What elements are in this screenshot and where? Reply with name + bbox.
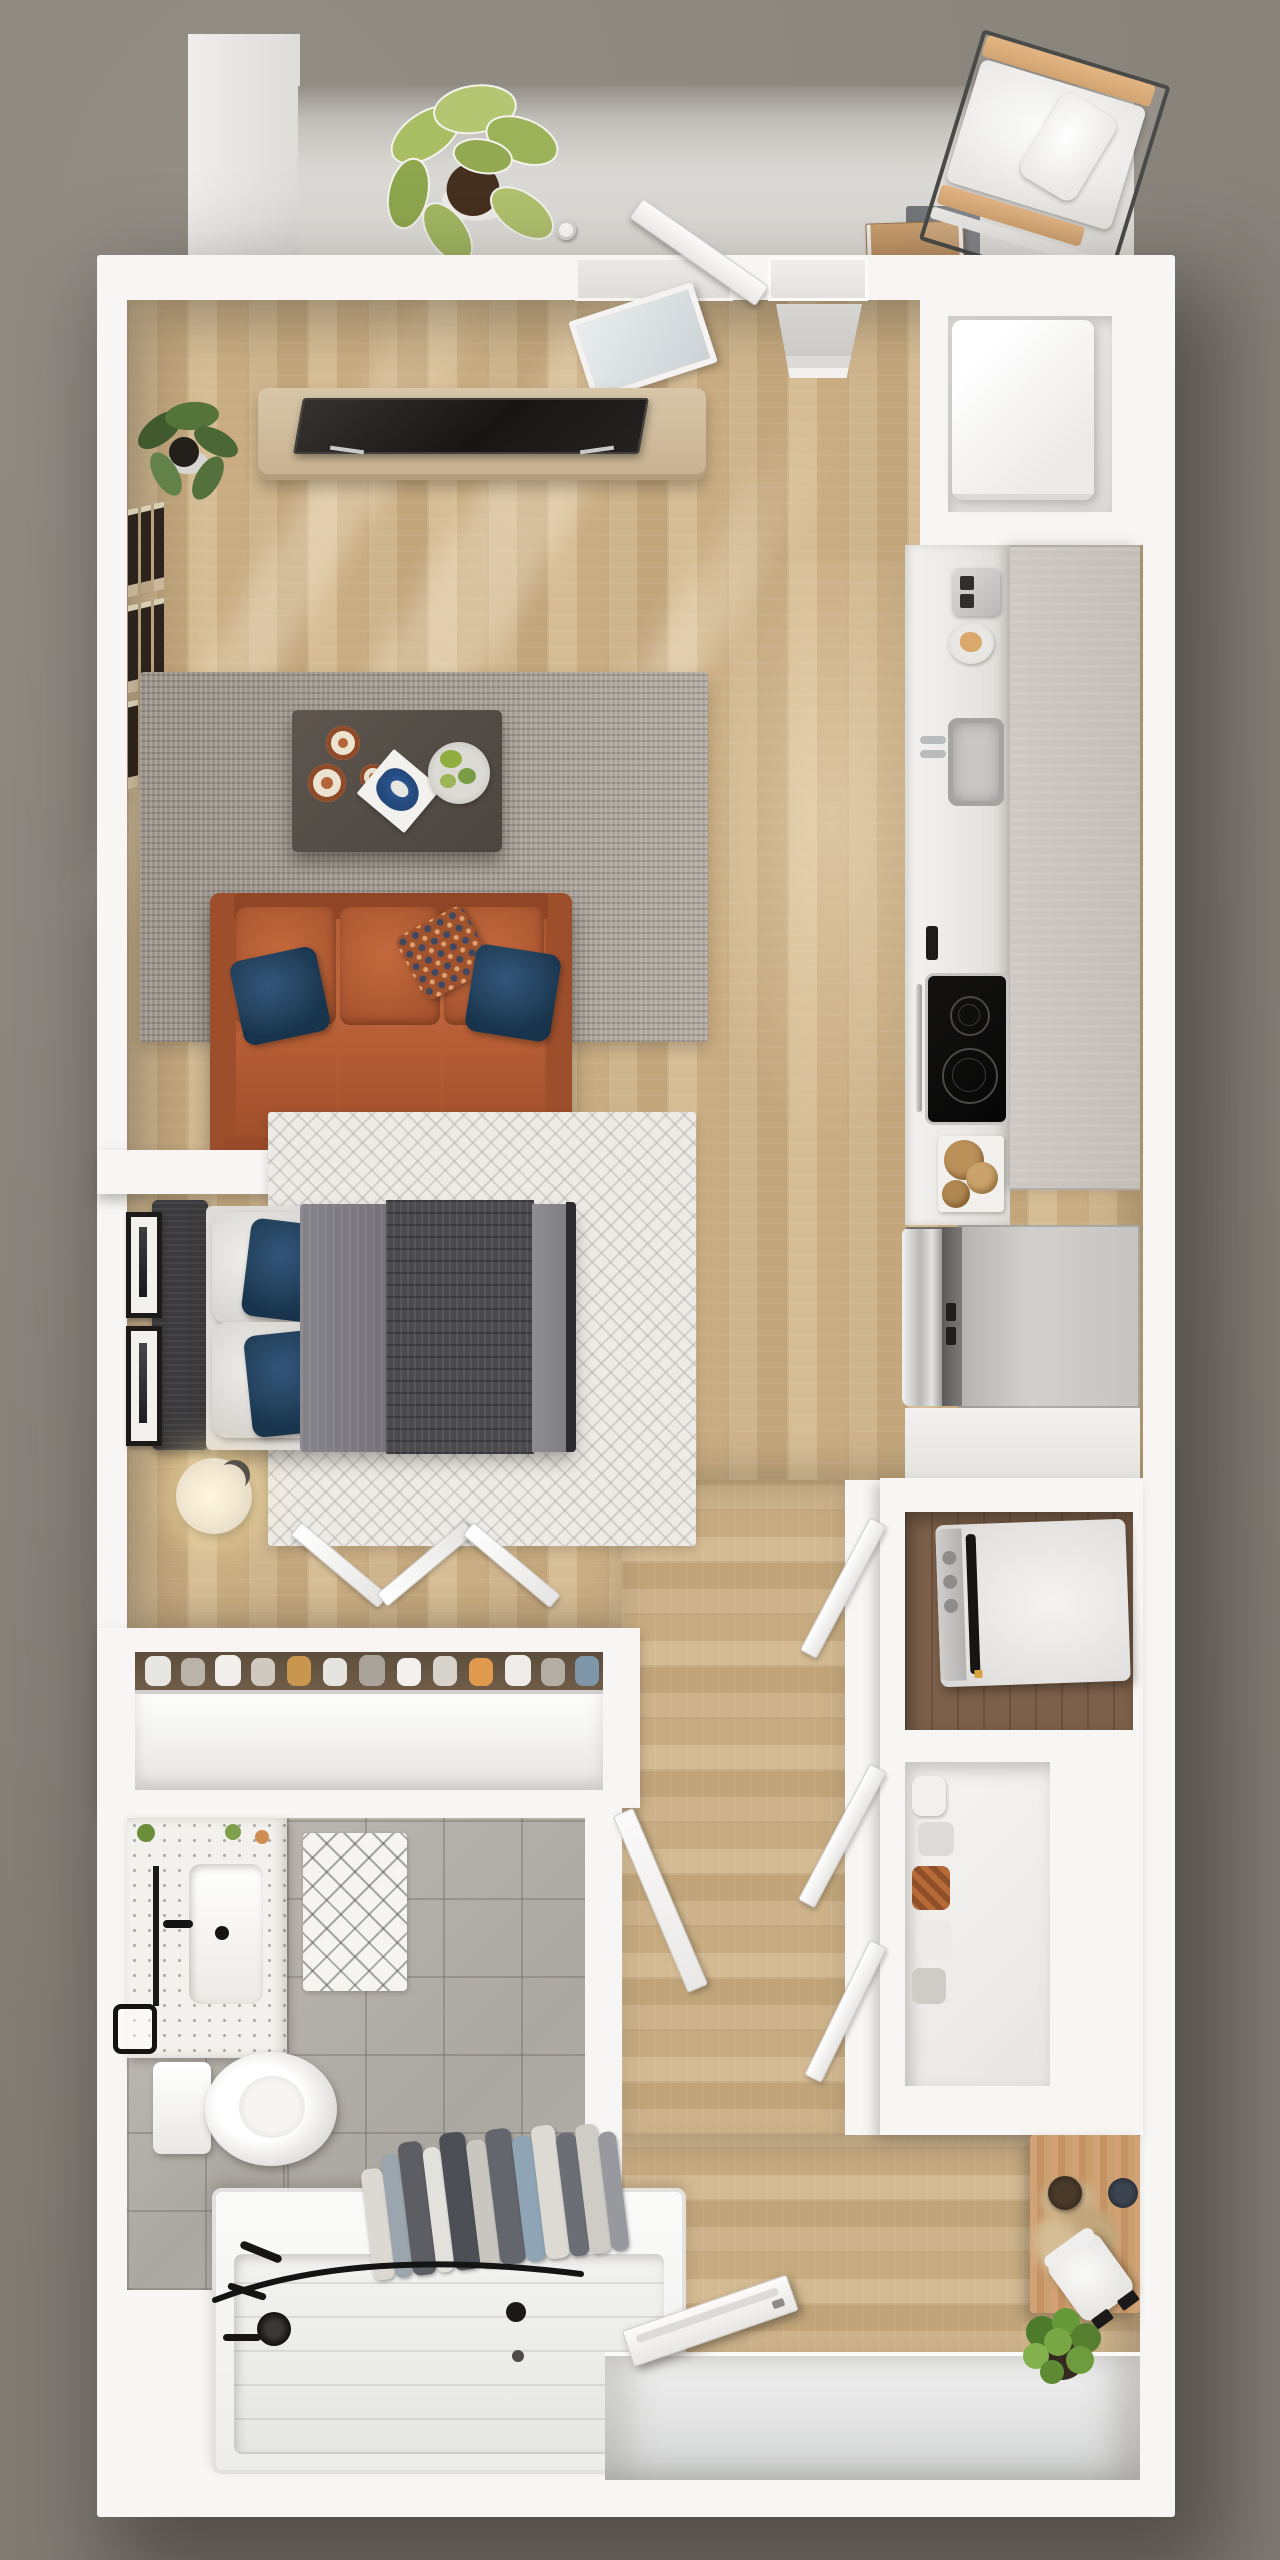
vanity-jar [255,1830,269,1844]
copper-mug [308,764,346,802]
laundry-storage-block [880,1478,1143,2135]
bedroom-wall-art [126,1212,162,1318]
balcony-cup [556,220,576,240]
tv [293,398,649,454]
floorplan-canvas [0,0,1280,2560]
refrigerator [902,1225,1140,1408]
kitchen-faucet [920,736,946,744]
bedside-lamp [176,1458,252,1534]
cutting-board [966,1162,998,1194]
duvet [300,1204,396,1452]
entry-plant [1008,2298,1118,2408]
bath-mat [303,1833,407,1991]
storage-shelf-items [910,1770,980,2070]
balcony-divider-wall [188,34,300,258]
closet-block [97,1628,640,1808]
vanity-plant [137,1824,155,1842]
navy-pillow [228,945,332,1047]
cutting-board [942,1180,970,1208]
towel-ring [113,2004,157,2054]
shoe-shelf [135,1652,603,1690]
desk-bowl [1108,2178,1138,2208]
cooktop [928,976,1006,1122]
cabinet-below-fridge [905,1408,1140,1480]
toaster [952,568,1000,616]
gallery-frame-group [128,500,168,601]
knit-throw [386,1200,534,1454]
vanity-faucet [163,1920,193,1928]
corner-plant [126,390,246,505]
pan-handle [926,926,938,960]
toilet [153,2052,343,2172]
vanity-mirror [153,1866,159,2006]
hallway-floor [622,1480,845,2135]
bathroom-block [97,1808,622,2480]
washer [935,1519,1131,1688]
navy-pillow [464,943,563,1043]
towel-bar [916,984,922,1112]
bedroom-wall-art [126,1326,162,1446]
water-heater [952,320,1094,500]
window-sill [768,257,868,301]
vanity-plant [225,1824,241,1840]
kitchen-sink [948,718,1004,806]
sink-drain [215,1926,229,1940]
copper-mug [326,726,360,760]
utility-nook-walls [920,300,1143,545]
desk-bowl [1048,2176,1082,2210]
bread-plate [948,622,994,664]
serving-plate [428,742,490,804]
bed [152,1198,582,1454]
upper-cabinets [1010,545,1140,1190]
curtain-rod [209,2248,589,2308]
